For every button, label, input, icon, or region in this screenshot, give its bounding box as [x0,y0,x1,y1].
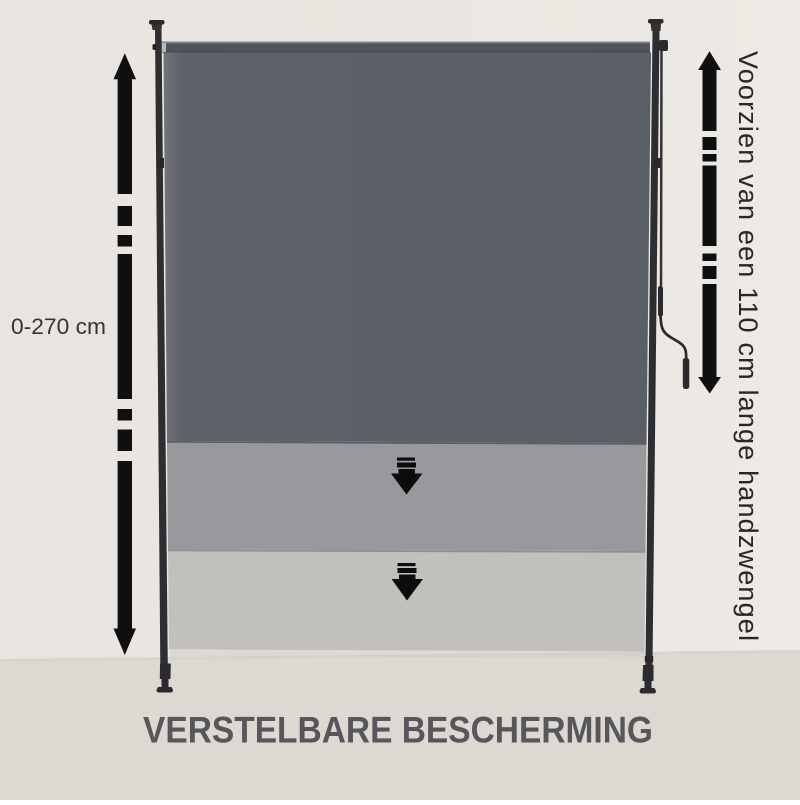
svg-text:VERSTELBARE BESCHERMING: VERSTELBARE BESCHERMING [143,710,653,751]
svg-text:0-270 cm: 0-270 cm [11,314,106,339]
svg-text:Voorzien van een 110 cm lange: Voorzien van een 110 cm lange handzwenge… [733,51,763,641]
